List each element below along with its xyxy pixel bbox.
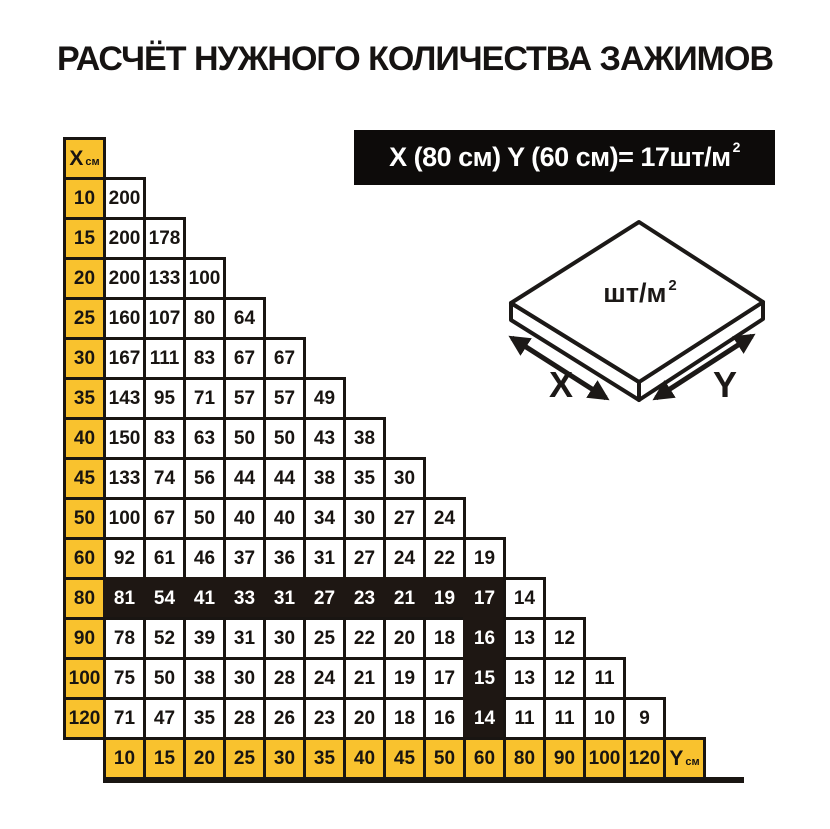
y-label-cell: 100 (583, 737, 626, 780)
value-cell: 40 (263, 497, 306, 540)
value-cell: 38 (183, 657, 226, 700)
value-cell: 30 (223, 657, 266, 700)
value-cell: 50 (143, 657, 186, 700)
value-cell-highlighted: 81 (103, 577, 146, 620)
value-cell: 28 (263, 657, 306, 700)
value-cell: 200 (103, 177, 146, 220)
value-cell: 133 (103, 457, 146, 500)
formula-superscript: 2 (733, 139, 740, 155)
value-cell: 67 (143, 497, 186, 540)
value-cell: 39 (183, 617, 226, 660)
value-cell: 24 (383, 537, 426, 580)
value-cell: 38 (343, 417, 386, 460)
value-cell: 67 (263, 337, 306, 380)
y-label-cell: 35 (303, 737, 346, 780)
value-cell: 71 (103, 697, 146, 740)
value-cell: 17 (423, 657, 466, 700)
x-label-cell: 90 (63, 617, 106, 660)
value-cell: 40 (223, 497, 266, 540)
value-cell: 63 (183, 417, 226, 460)
value-cell: 92 (103, 537, 146, 580)
value-cell: 74 (143, 457, 186, 500)
value-cell-highlighted: 15 (463, 657, 506, 700)
value-cell: 24 (423, 497, 466, 540)
value-cell: 49 (303, 377, 346, 420)
value-cell: 100 (183, 257, 226, 300)
value-cell: 31 (303, 537, 346, 580)
x-label-cell: 50 (63, 497, 106, 540)
x-label-cell: 35 (63, 377, 106, 420)
value-cell-highlighted: 19 (423, 577, 466, 620)
y-header-cell: Yсм (663, 737, 706, 780)
x-label-cell: 10 (63, 177, 106, 220)
x-label-cell: 40 (63, 417, 106, 460)
value-cell: 133 (143, 257, 186, 300)
value-cell: 83 (143, 417, 186, 460)
value-cell: 38 (303, 457, 346, 500)
value-cell: 11 (543, 697, 586, 740)
value-cell: 95 (143, 377, 186, 420)
x-label-cell: 45 (63, 457, 106, 500)
value-cell: 10 (583, 697, 626, 740)
value-cell: 23 (303, 697, 346, 740)
value-cell: 9 (623, 697, 666, 740)
value-cell: 61 (143, 537, 186, 580)
x-label-cell: 15 (63, 217, 106, 260)
value-cell: 107 (143, 297, 186, 340)
value-cell: 71 (183, 377, 226, 420)
x-label-cell: 30 (63, 337, 106, 380)
value-cell-highlighted: 54 (143, 577, 186, 620)
value-cell: 13 (503, 617, 546, 660)
value-cell: 83 (183, 337, 226, 380)
x-header-cell: Xсм (63, 137, 106, 180)
value-cell: 16 (423, 697, 466, 740)
value-cell: 12 (543, 617, 586, 660)
value-cell: 22 (343, 617, 386, 660)
value-cell: 27 (343, 537, 386, 580)
y-label-cell: 60 (463, 737, 506, 780)
value-cell: 12 (543, 657, 586, 700)
value-cell: 24 (303, 657, 346, 700)
value-cell: 57 (223, 377, 266, 420)
value-cell: 80 (183, 297, 226, 340)
y-label-cell: 25 (223, 737, 266, 780)
value-cell: 46 (183, 537, 226, 580)
value-cell-highlighted: 33 (223, 577, 266, 620)
page-title: РАСЧЁТ НУЖНОГО КОЛИЧЕСТВА ЗАЖИМОВ (0, 40, 830, 79)
y-label-cell: 30 (263, 737, 306, 780)
value-cell: 30 (343, 497, 386, 540)
value-cell: 30 (383, 457, 426, 500)
table-baseline (103, 777, 744, 783)
value-cell: 50 (183, 497, 226, 540)
value-cell: 64 (223, 297, 266, 340)
value-cell-highlighted: 21 (383, 577, 426, 620)
value-cell: 56 (183, 457, 226, 500)
value-cell: 78 (103, 617, 146, 660)
value-cell: 160 (103, 297, 146, 340)
value-cell-highlighted: 41 (183, 577, 226, 620)
x-label-cell: 20 (63, 257, 106, 300)
y-label-cell: 20 (183, 737, 226, 780)
y-label-cell: 120 (623, 737, 666, 780)
value-cell: 19 (383, 657, 426, 700)
x-label-cell: 100 (63, 657, 106, 700)
value-cell: 47 (143, 697, 186, 740)
y-label-cell: 80 (503, 737, 546, 780)
value-cell-highlighted: 17 (463, 577, 506, 620)
value-cell: 11 (503, 697, 546, 740)
value-cell: 50 (223, 417, 266, 460)
y-label-cell: 15 (143, 737, 186, 780)
value-cell: 43 (303, 417, 346, 460)
y-label-cell: 45 (383, 737, 426, 780)
value-cell: 200 (103, 257, 146, 300)
value-cell: 52 (143, 617, 186, 660)
y-label-cell: 50 (423, 737, 466, 780)
value-cell-highlighted: 31 (263, 577, 306, 620)
value-cell: 111 (143, 337, 186, 380)
value-cell: 36 (263, 537, 306, 580)
value-cell: 44 (223, 457, 266, 500)
value-cell-highlighted: 16 (463, 617, 506, 660)
y-label-cell: 40 (343, 737, 386, 780)
value-cell: 100 (103, 497, 146, 540)
y-label-cell: 90 (543, 737, 586, 780)
value-cell: 18 (423, 617, 466, 660)
y-label-cell: 10 (103, 737, 146, 780)
value-cell: 20 (343, 697, 386, 740)
x-label-cell: 25 (63, 297, 106, 340)
value-cell-highlighted: 23 (343, 577, 386, 620)
value-cell: 21 (343, 657, 386, 700)
value-cell: 18 (383, 697, 426, 740)
value-cell: 67 (223, 337, 266, 380)
clamp-matrix-table: Xсм1020015200178202001331002516010780643… (63, 137, 709, 783)
value-cell: 35 (343, 457, 386, 500)
value-cell: 31 (223, 617, 266, 660)
x-label-cell: 120 (63, 697, 106, 740)
value-cell-highlighted: 27 (303, 577, 346, 620)
value-cell: 57 (263, 377, 306, 420)
value-cell: 14 (503, 577, 546, 620)
value-cell: 11 (583, 657, 626, 700)
value-cell: 19 (463, 537, 506, 580)
value-cell: 37 (223, 537, 266, 580)
value-cell: 13 (503, 657, 546, 700)
value-cell: 20 (383, 617, 426, 660)
value-cell: 143 (103, 377, 146, 420)
value-cell: 22 (423, 537, 466, 580)
value-cell: 34 (303, 497, 346, 540)
x-label-cell: 60 (63, 537, 106, 580)
value-cell: 50 (263, 417, 306, 460)
value-cell: 30 (263, 617, 306, 660)
value-cell: 200 (103, 217, 146, 260)
value-cell: 27 (383, 497, 426, 540)
value-cell: 35 (183, 697, 226, 740)
value-cell: 25 (303, 617, 346, 660)
value-cell: 26 (263, 697, 306, 740)
value-cell: 167 (103, 337, 146, 380)
value-cell: 178 (143, 217, 186, 260)
x-label-cell: 80 (63, 577, 106, 620)
value-cell-highlighted: 14 (463, 697, 506, 740)
value-cell: 28 (223, 697, 266, 740)
value-cell: 44 (263, 457, 306, 500)
value-cell: 75 (103, 657, 146, 700)
value-cell: 150 (103, 417, 146, 460)
